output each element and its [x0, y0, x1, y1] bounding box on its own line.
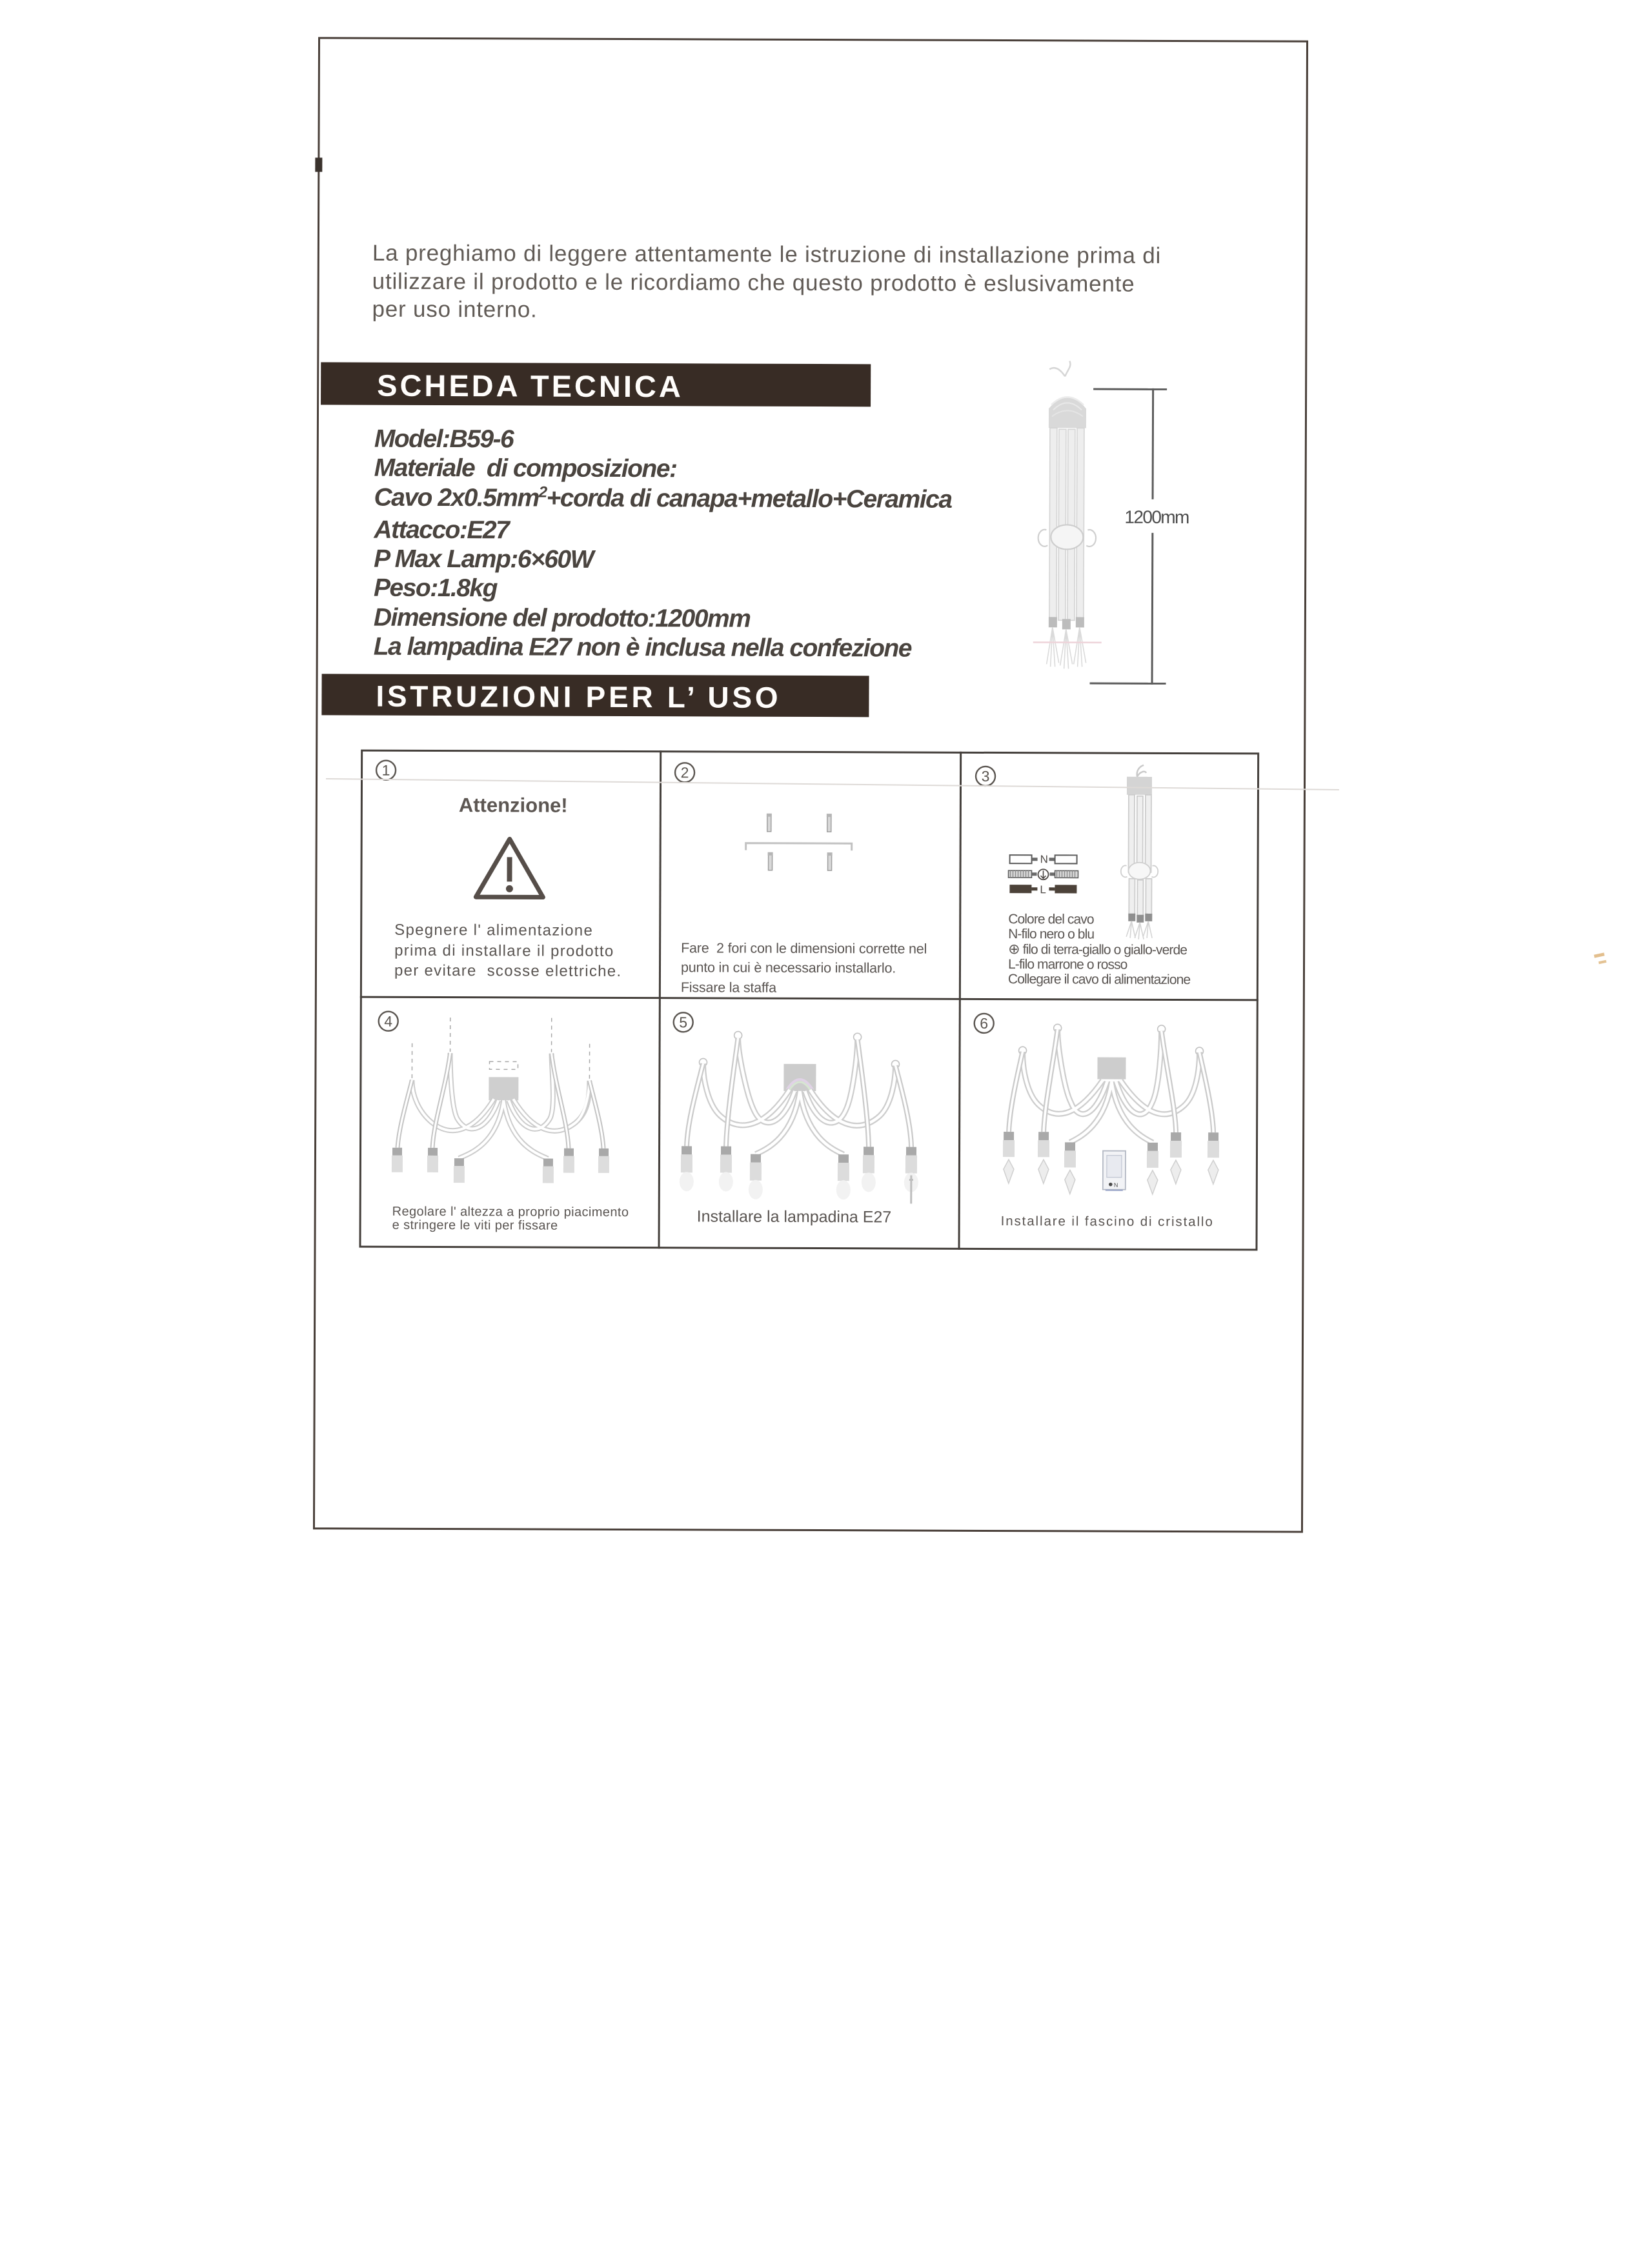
- svg-text:N: N: [1114, 1182, 1118, 1189]
- svg-text:L: L: [1040, 883, 1046, 896]
- svg-text:1: 1: [382, 762, 390, 779]
- svg-text:2: 2: [681, 764, 689, 781]
- svg-text:3: 3: [982, 768, 990, 785]
- svg-text:N: N: [1040, 853, 1048, 865]
